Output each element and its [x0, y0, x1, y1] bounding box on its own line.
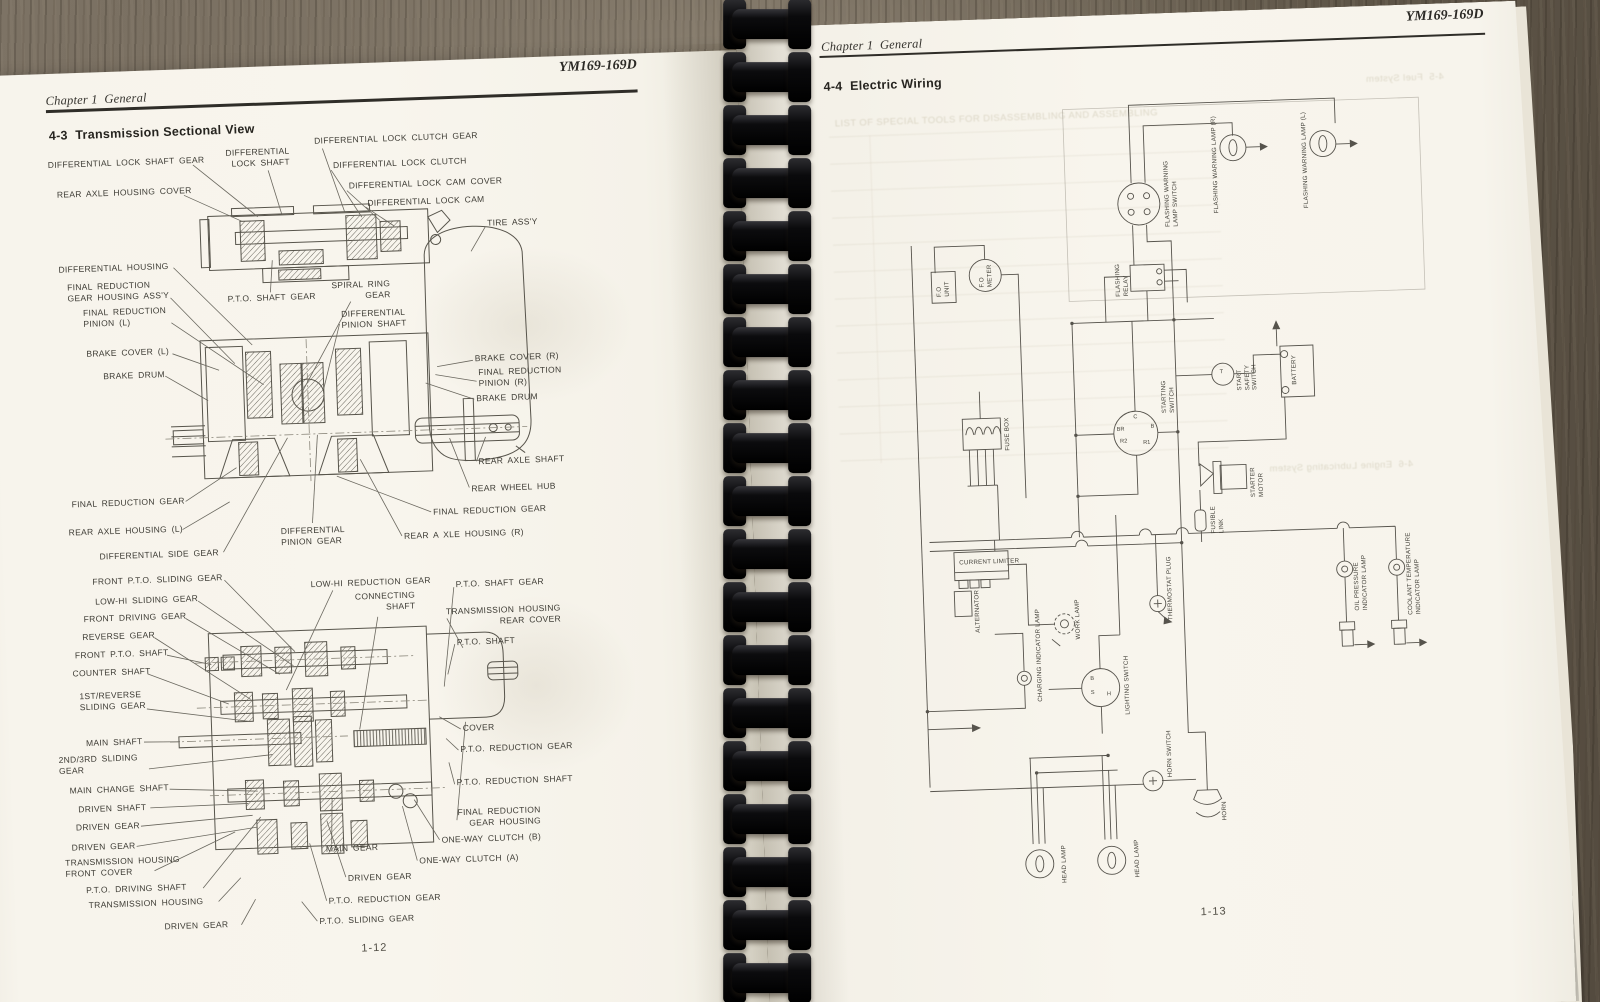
- terminal-letter: R2: [1120, 439, 1127, 445]
- diagram-label: DIFFERENTIAL PINION SHAFT: [341, 307, 407, 330]
- right-page-number: 1-13: [1200, 905, 1226, 918]
- right-header-model: YM169-169D: [1405, 7, 1483, 26]
- component-label: FUSE BOX: [1003, 417, 1012, 451]
- diagram-label: FINAL REDUCTION GEAR HOUSING ASS'Y: [67, 279, 169, 304]
- diagram-label: MAIN SHAFT: [86, 736, 143, 748]
- diagram-label: FINAL REDUCTION PINION (L): [83, 305, 167, 329]
- terminal-letter: C: [1133, 414, 1137, 420]
- diagram-label: FINAL REDUCTION GEAR HOUSING: [457, 804, 541, 828]
- binding-comb-tooth: [723, 582, 811, 632]
- diagram-label: TRANSMISSION HOUSING REAR COVER: [446, 602, 561, 627]
- diagram-label: COVER: [463, 722, 495, 734]
- terminal-letter: B: [1090, 676, 1094, 682]
- binding-comb-tooth: [723, 158, 811, 208]
- diagram-label: DRIVEN GEAR: [164, 919, 228, 932]
- manual-photo: 4-5 Fuel SystemLIST OF SPECIAL TOOLS FOR…: [0, 0, 1600, 1002]
- left-page-number: 1-12: [361, 942, 387, 955]
- diagram-label: CONNECTING SHAFT: [355, 589, 416, 612]
- diagram-label: 2ND/3RD SLIDING GEAR: [58, 752, 138, 776]
- component-label: FUSIBLE LINK: [1209, 506, 1225, 534]
- binding-comb-tooth: [723, 688, 811, 738]
- binding-comb-tooth: [723, 317, 811, 367]
- component-label: FLASHING RELAY: [1114, 263, 1130, 296]
- binding-comb-tooth: [723, 0, 811, 49]
- component-label: F.O METER: [978, 264, 994, 287]
- terminal-letter: S: [1091, 690, 1095, 696]
- binding-comb-tooth: [723, 476, 811, 526]
- component-label: F.O UNIT: [935, 281, 951, 297]
- binding-comb-tooth: [723, 953, 811, 1002]
- component-label: START SAFETY SWITCH: [1236, 364, 1260, 391]
- binding-comb-tooth: [723, 211, 811, 261]
- binding-comb-tooth: [723, 847, 811, 897]
- diagram-label: 1ST/REVERSE SLIDING GEAR: [79, 689, 146, 712]
- binding-comb-tooth: [723, 741, 811, 791]
- binding-comb-tooth: [723, 264, 811, 314]
- component-label: COOLANT TEMPERATURE INDICATOR LAMP: [1404, 532, 1422, 615]
- diagram-label: BRAKE DRUM: [103, 369, 165, 382]
- binding-comb-tooth: [723, 370, 811, 420]
- binding-comb-tooth: [723, 423, 811, 473]
- terminal-letter: BR: [1117, 427, 1125, 433]
- binding-comb-tooth: [723, 635, 811, 685]
- component-label: HORN: [1221, 801, 1229, 820]
- component-label: HEAD LAMP: [1133, 839, 1142, 877]
- component-label: ALTERNATOR: [973, 590, 982, 633]
- open-manual-book: 4-5 Fuel SystemLIST OF SPECIAL TOOLS FOR…: [0, 0, 1600, 1002]
- diagram-label: FINAL REDUCTION PINION (R): [478, 364, 562, 388]
- diagram-label: DRIVEN GEAR: [71, 840, 135, 853]
- component-label: BATTERY: [1290, 355, 1299, 385]
- diagram-label: DRIVEN GEAR: [76, 820, 140, 833]
- binding-comb-tooth: [723, 900, 811, 950]
- binding-comb-tooth: [723, 105, 811, 155]
- component-label: OIL PRESSURE INDICATOR LAMP: [1352, 555, 1369, 611]
- terminal-letter: H: [1107, 691, 1111, 697]
- binding-comb-tooth: [723, 794, 811, 844]
- component-label: HORN SWITCH: [1165, 730, 1174, 777]
- component-label: STARTING SWITCH: [1160, 380, 1176, 413]
- terminal-letter: T: [1220, 369, 1224, 375]
- component-label: HEAD LAMP: [1060, 845, 1069, 883]
- diagram-label: DRIVEN GEAR: [348, 871, 412, 884]
- diagram-label: MAIN GEAR: [326, 842, 379, 854]
- spiral-comb-binding: [723, 0, 811, 1002]
- diagram-label: BRAKE DRUM: [476, 391, 538, 404]
- terminal-letter: B: [1151, 424, 1155, 430]
- diagram-label: TIRE ASS'Y: [487, 216, 538, 228]
- component-label: STARTER MOTOR: [1249, 467, 1265, 498]
- binding-comb-tooth: [723, 529, 811, 579]
- diagram-label: DIFFERENTIAL PINION GEAR: [281, 524, 346, 547]
- component-label: FLASHING WARNING LAMP SWITCH: [1162, 160, 1179, 227]
- diagram-label: P.T.O. SHAFT: [457, 635, 516, 648]
- diagram-label: SPIRAL RING GEAR: [331, 278, 391, 301]
- component-label: WORK LAMP: [1074, 599, 1083, 639]
- terminal-letter: R1: [1143, 440, 1150, 446]
- binding-comb-tooth: [723, 52, 811, 102]
- diagram-label: DIFFERENTIAL LOCK SHAFT: [225, 146, 290, 169]
- left-header-model: YM169-169D: [559, 57, 637, 76]
- diagram-label: TRANSMISSION HOUSING FRONT COVER: [65, 854, 180, 879]
